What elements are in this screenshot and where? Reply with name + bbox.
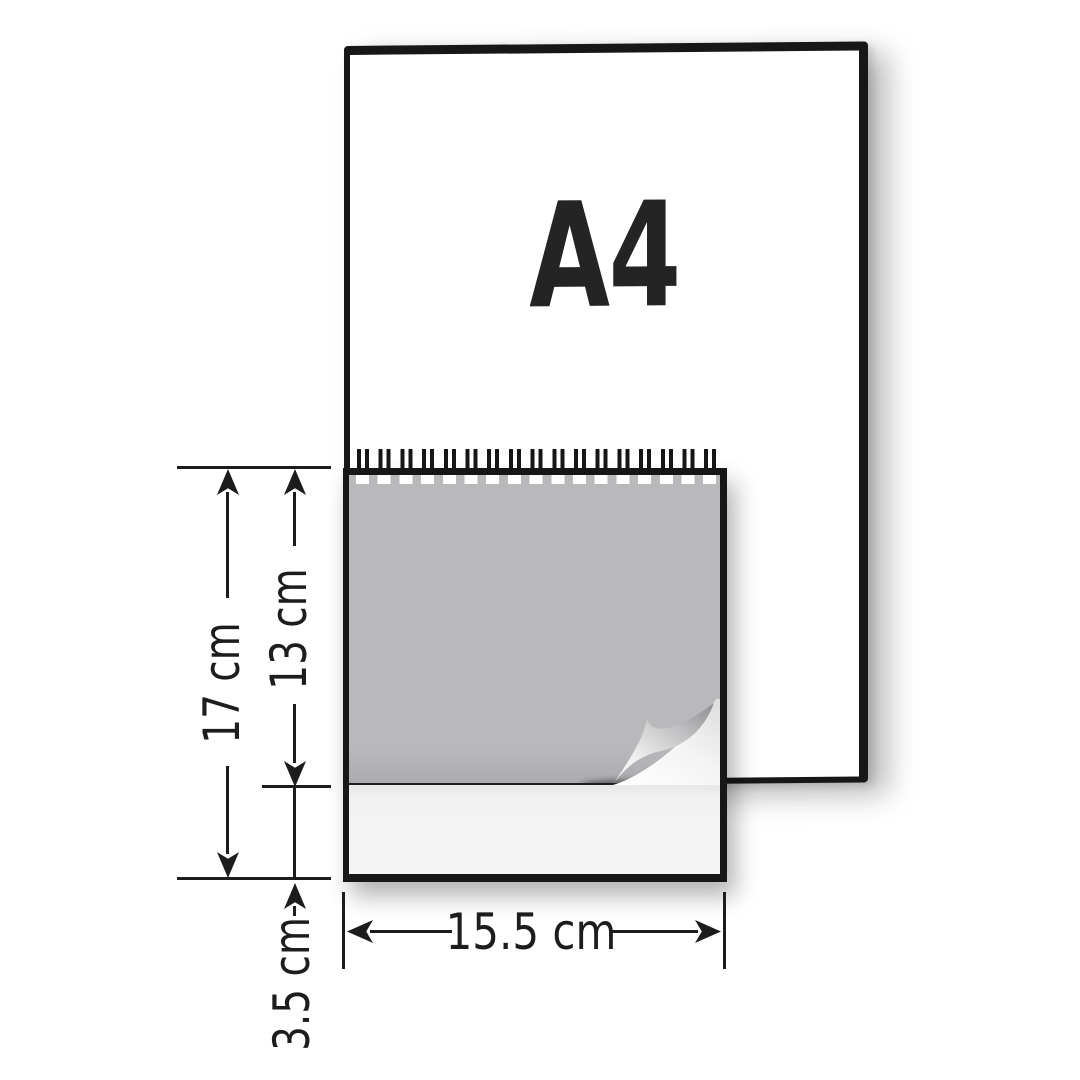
arrow-down-icon xyxy=(216,852,240,878)
ext-line-top xyxy=(177,466,331,469)
dim-17-shaft-top xyxy=(226,492,229,598)
dim-label-total-height: 17 cm xyxy=(196,617,248,750)
pad-border-right xyxy=(720,468,727,882)
dim-13-shaft-top xyxy=(293,492,296,546)
spiral-binding-holes xyxy=(356,475,725,484)
dim-155-shaft-left xyxy=(370,930,452,933)
dim-155-shaft-right xyxy=(612,930,698,933)
dim-35-stem xyxy=(293,906,296,916)
dimension-diagram: A4 xyxy=(0,0,1080,1080)
page-curl-icon xyxy=(595,695,720,785)
dim-label-base-height: 3.5 cm xyxy=(266,918,318,1051)
dim-label-front-height: 13 cm xyxy=(263,563,315,696)
calendar-pad xyxy=(343,468,727,882)
ext-line-width-left xyxy=(342,892,345,969)
spiral-binding-icon xyxy=(357,449,726,476)
arrow-right-icon xyxy=(695,919,721,944)
ext-line-width-right xyxy=(723,892,726,969)
a4-size-label: A4 xyxy=(421,179,787,334)
pad-border-left xyxy=(343,468,349,882)
dim-17-shaft-bottom xyxy=(226,766,229,854)
dim-13-shaft-bottom xyxy=(293,704,296,763)
ext-line-pad-bottom xyxy=(177,877,331,880)
dim-35-span-line xyxy=(293,788,296,880)
arrow-down-icon xyxy=(283,761,307,787)
pad-border-bottom xyxy=(343,874,727,882)
dim-label-width: 15.5 cm xyxy=(460,906,603,958)
ext-line-front-bottom xyxy=(262,785,331,788)
calendar-base xyxy=(343,785,727,882)
